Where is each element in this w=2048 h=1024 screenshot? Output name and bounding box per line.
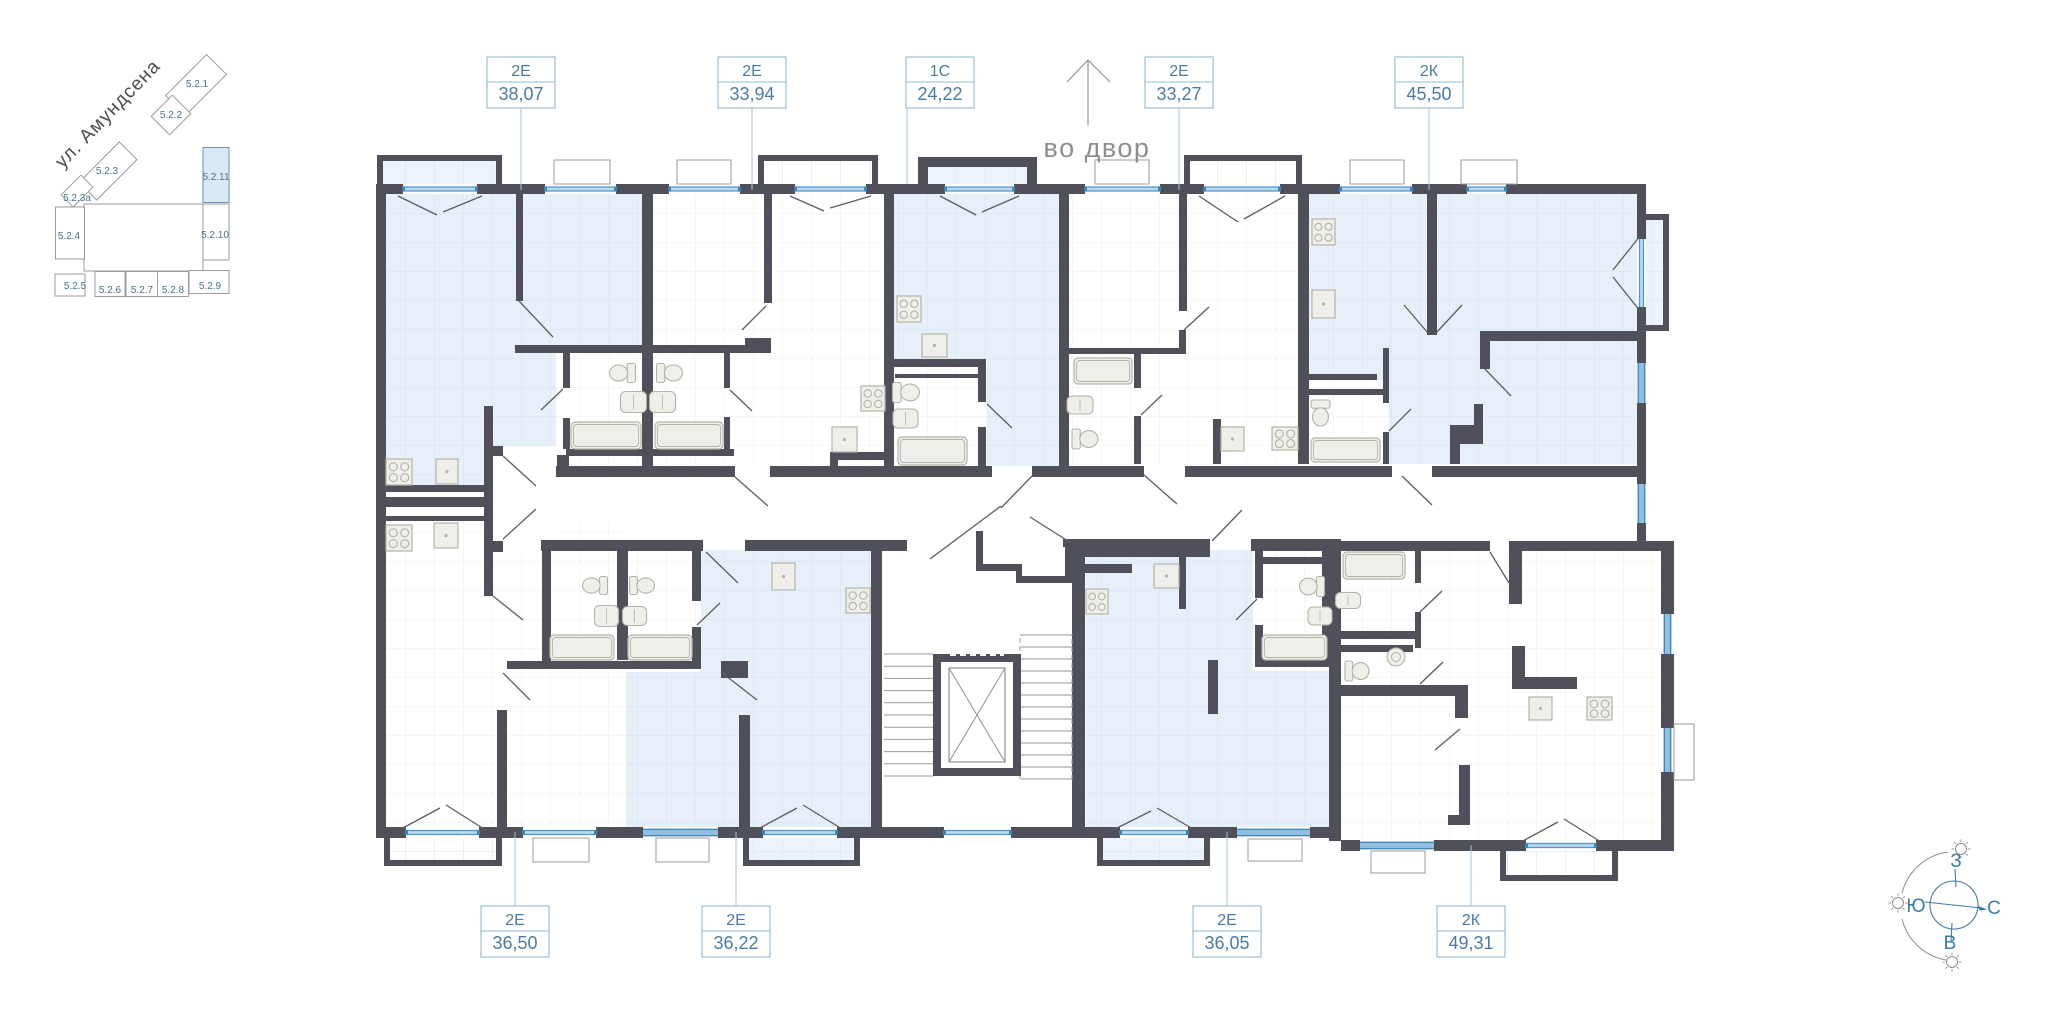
svg-text:36,22: 36,22 (713, 933, 758, 953)
svg-text:5.2.10: 5.2.10 (201, 230, 229, 241)
svg-text:36,50: 36,50 (492, 933, 537, 953)
svg-text:В: В (1944, 933, 1957, 954)
svg-text:С: С (1987, 898, 2001, 919)
svg-text:2Е: 2Е (511, 63, 531, 80)
svg-text:2Е: 2Е (742, 63, 762, 80)
svg-text:36,05: 36,05 (1204, 933, 1249, 953)
svg-text:5.2.8: 5.2.8 (162, 285, 185, 296)
svg-text:Ю: Ю (1906, 896, 1925, 917)
svg-text:5.2.3а: 5.2.3а (63, 193, 91, 204)
svg-text:2Е: 2Е (1217, 912, 1237, 929)
svg-text:33,27: 33,27 (1156, 84, 1201, 104)
svg-text:5.2.7: 5.2.7 (131, 285, 154, 296)
svg-text:2К: 2К (1420, 63, 1439, 80)
svg-text:5.2.9: 5.2.9 (199, 281, 222, 292)
svg-text:33,94: 33,94 (729, 84, 774, 104)
svg-text:2Е: 2Е (505, 912, 525, 929)
svg-text:5.2.1: 5.2.1 (186, 79, 209, 90)
svg-text:5.2.4: 5.2.4 (58, 231, 81, 242)
svg-text:5.2.2: 5.2.2 (160, 110, 183, 121)
svg-text:5.2.6: 5.2.6 (99, 285, 122, 296)
svg-text:38,07: 38,07 (498, 84, 543, 104)
svg-text:2Е: 2Е (726, 912, 746, 929)
svg-text:1С: 1С (930, 63, 950, 80)
svg-text:во двор: во двор (1044, 133, 1151, 163)
svg-text:5.2.3: 5.2.3 (96, 166, 119, 177)
svg-text:5.2.5: 5.2.5 (64, 281, 87, 292)
svg-text:45,50: 45,50 (1406, 84, 1451, 104)
svg-text:24,22: 24,22 (917, 84, 962, 104)
svg-text:5.2.11: 5.2.11 (202, 172, 229, 183)
svg-text:2К: 2К (1462, 912, 1481, 929)
svg-text:2Е: 2Е (1169, 63, 1189, 80)
svg-text:49,31: 49,31 (1448, 933, 1493, 953)
